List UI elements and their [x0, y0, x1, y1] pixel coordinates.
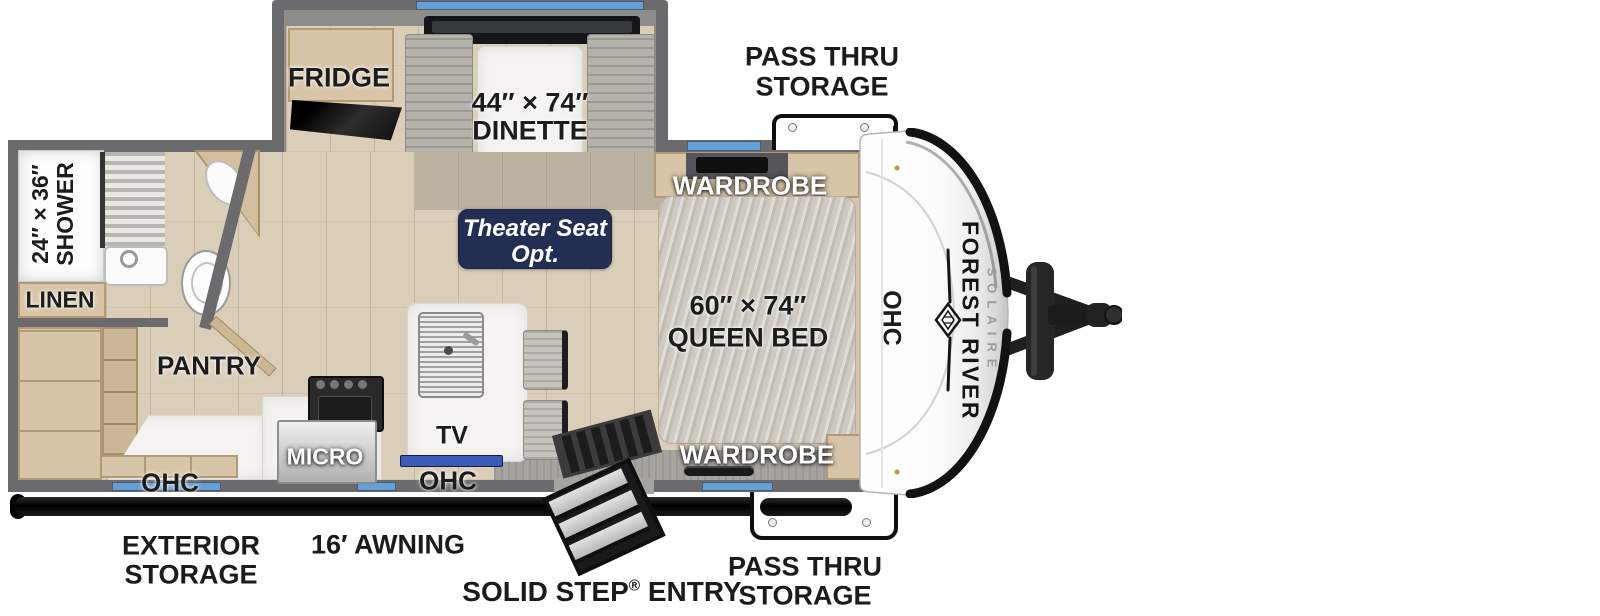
bed-label: QUEEN BED	[668, 323, 829, 354]
floorplan-canvas: FRIDGE 44″ × 74″ DINETTE 24″ × 36″ SHOWE…	[0, 0, 1600, 616]
front-cap-model: SOLAIRE	[985, 268, 1000, 375]
shower-pan	[104, 246, 168, 286]
micro-label: MICRO	[287, 444, 364, 471]
island-sink-grate	[418, 312, 484, 398]
theater-seat-line2: Opt.	[511, 241, 559, 269]
pass-thru-top-label-1: PASS THRU	[745, 42, 899, 73]
screw-icon	[862, 518, 871, 527]
stove-knob	[316, 380, 325, 389]
theater-seat-line1: Theater Seat	[463, 215, 607, 243]
exterior-storage-label-2: STORAGE	[124, 560, 257, 591]
awning-arm-front	[760, 498, 852, 516]
floor-shadow-dinette	[415, 152, 667, 210]
pantry-drawers	[102, 327, 138, 455]
shower-label: 24″ × 36″ SHOWER	[28, 162, 78, 266]
tv-unit	[400, 455, 503, 467]
ohc-front-label: OHC	[877, 290, 906, 346]
stove-knob	[358, 380, 367, 389]
stove-knob	[344, 380, 353, 389]
ohc-left-label: OHC	[141, 468, 199, 499]
pass-thru-bottom-label-2: STORAGE	[738, 581, 871, 612]
wardrobe-bottom-label: WARDROBE	[680, 440, 835, 471]
window-strip-top	[688, 142, 760, 150]
linen-label: LINEN	[26, 287, 95, 314]
front-cap-brand: FOREST RIVER	[957, 221, 984, 421]
screw-icon	[788, 123, 797, 132]
shower-glass	[105, 152, 165, 248]
bar-stool	[523, 330, 568, 390]
shower-drain	[120, 250, 138, 268]
rear-wall	[8, 140, 18, 492]
screw-icon	[768, 518, 777, 527]
theater-seat-badge: Theater Seat Opt.	[458, 209, 612, 269]
tv-label: TV	[436, 422, 468, 451]
dinette-label: DINETTE	[472, 116, 588, 147]
island-sink-drain	[444, 346, 453, 355]
hitch-icon	[1002, 256, 1122, 386]
stove-knob	[330, 380, 339, 389]
bathroom-bottom-wall	[8, 318, 168, 327]
window-strip-bottom-mid	[358, 483, 395, 490]
entry-label: SOLID STEP® ENTRY	[462, 576, 741, 608]
ohc-mid-label: OHC	[419, 466, 477, 497]
dinette-size-label: 44″ × 74″	[472, 88, 589, 119]
awning-label: 16′ AWNING	[311, 530, 465, 561]
exterior-storage-label-1: EXTERIOR	[122, 531, 260, 562]
pass-thru-bottom-label-1: PASS THRU	[728, 552, 882, 583]
pantry-label: PANTRY	[157, 351, 261, 382]
fridge-label: FRIDGE	[288, 63, 390, 94]
pantry-cabinet	[18, 327, 102, 480]
pass-thru-top-label-2: STORAGE	[755, 72, 888, 103]
window-strip-bottom-right	[703, 483, 772, 490]
awning-bar	[14, 497, 852, 516]
bed-size-label: 60″ × 74″	[690, 291, 807, 322]
dinette-window-glass	[432, 21, 632, 33]
slideout-window-strip	[417, 2, 643, 9]
